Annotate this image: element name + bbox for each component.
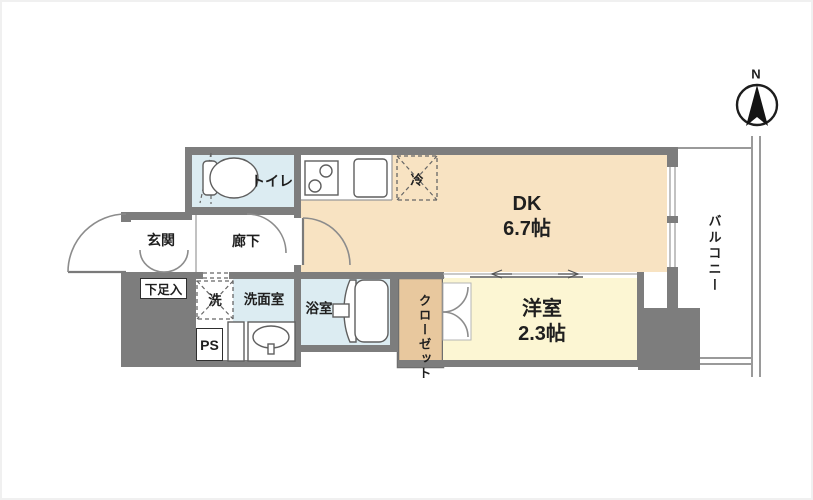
wall-right-low-chunk	[667, 267, 678, 308]
dk-name: DK	[503, 192, 551, 217]
window-lower	[667, 223, 678, 267]
vanity-icon	[228, 322, 295, 361]
shoe-cabinet-label: 下足入	[140, 278, 187, 299]
western-room-doors-icon	[443, 283, 471, 340]
toilet-label: トイレ	[251, 171, 293, 191]
wall-right-top-chunk	[667, 147, 678, 167]
hallway-label: 廊下	[232, 231, 260, 251]
floor-plan-drawing	[0, 0, 813, 500]
wall-toilet-left	[185, 147, 192, 215]
western-room-size: 2.3帖	[518, 322, 566, 347]
wall-entrance-top	[121, 212, 192, 220]
toilet-icon	[203, 158, 258, 198]
wall-bath-bottom	[294, 345, 398, 352]
kitchen-sink-icon	[354, 159, 387, 197]
compass-north-label: N	[751, 67, 760, 82]
closet-label: クローゼット	[416, 294, 429, 346]
wall-bath-closet	[390, 278, 398, 352]
refrigerator-label: 冷	[410, 170, 423, 189]
wall-western-bottom	[398, 360, 644, 367]
stove-icon	[305, 161, 338, 195]
wall-dk-bottom	[294, 272, 444, 279]
floor-plan-image: トイレ 玄関 下足入 廊下 洗 洗面室 PS 浴室 冷 DK 6.7帖 洋室 2…	[0, 0, 813, 500]
dk-door-opening	[293, 218, 302, 265]
wall-mass-bottom-right	[638, 308, 700, 370]
entrance-label: 玄関	[147, 230, 175, 250]
laundry-label: 洗	[208, 289, 222, 309]
wall-top	[185, 147, 678, 155]
dk-size: 6.7帖	[503, 217, 551, 242]
entrance-door-icon	[68, 214, 126, 272]
washroom-label: 洗面室	[244, 288, 285, 308]
western-room-name: 洋室	[518, 297, 566, 322]
wall-right-mid-chunk	[667, 216, 678, 223]
balcony-label: バルコニー	[705, 214, 724, 294]
washroom-opening-icon	[203, 272, 229, 279]
wall-toilet-bottom	[185, 207, 301, 215]
pipe-space-label: PS	[196, 328, 223, 361]
compass-icon	[737, 85, 777, 126]
western-room-label: 洋室 2.3帖	[518, 297, 566, 347]
window-upper	[667, 167, 678, 216]
dk-label: DK 6.7帖	[503, 192, 551, 242]
bathroom-label: 浴室	[306, 297, 333, 317]
